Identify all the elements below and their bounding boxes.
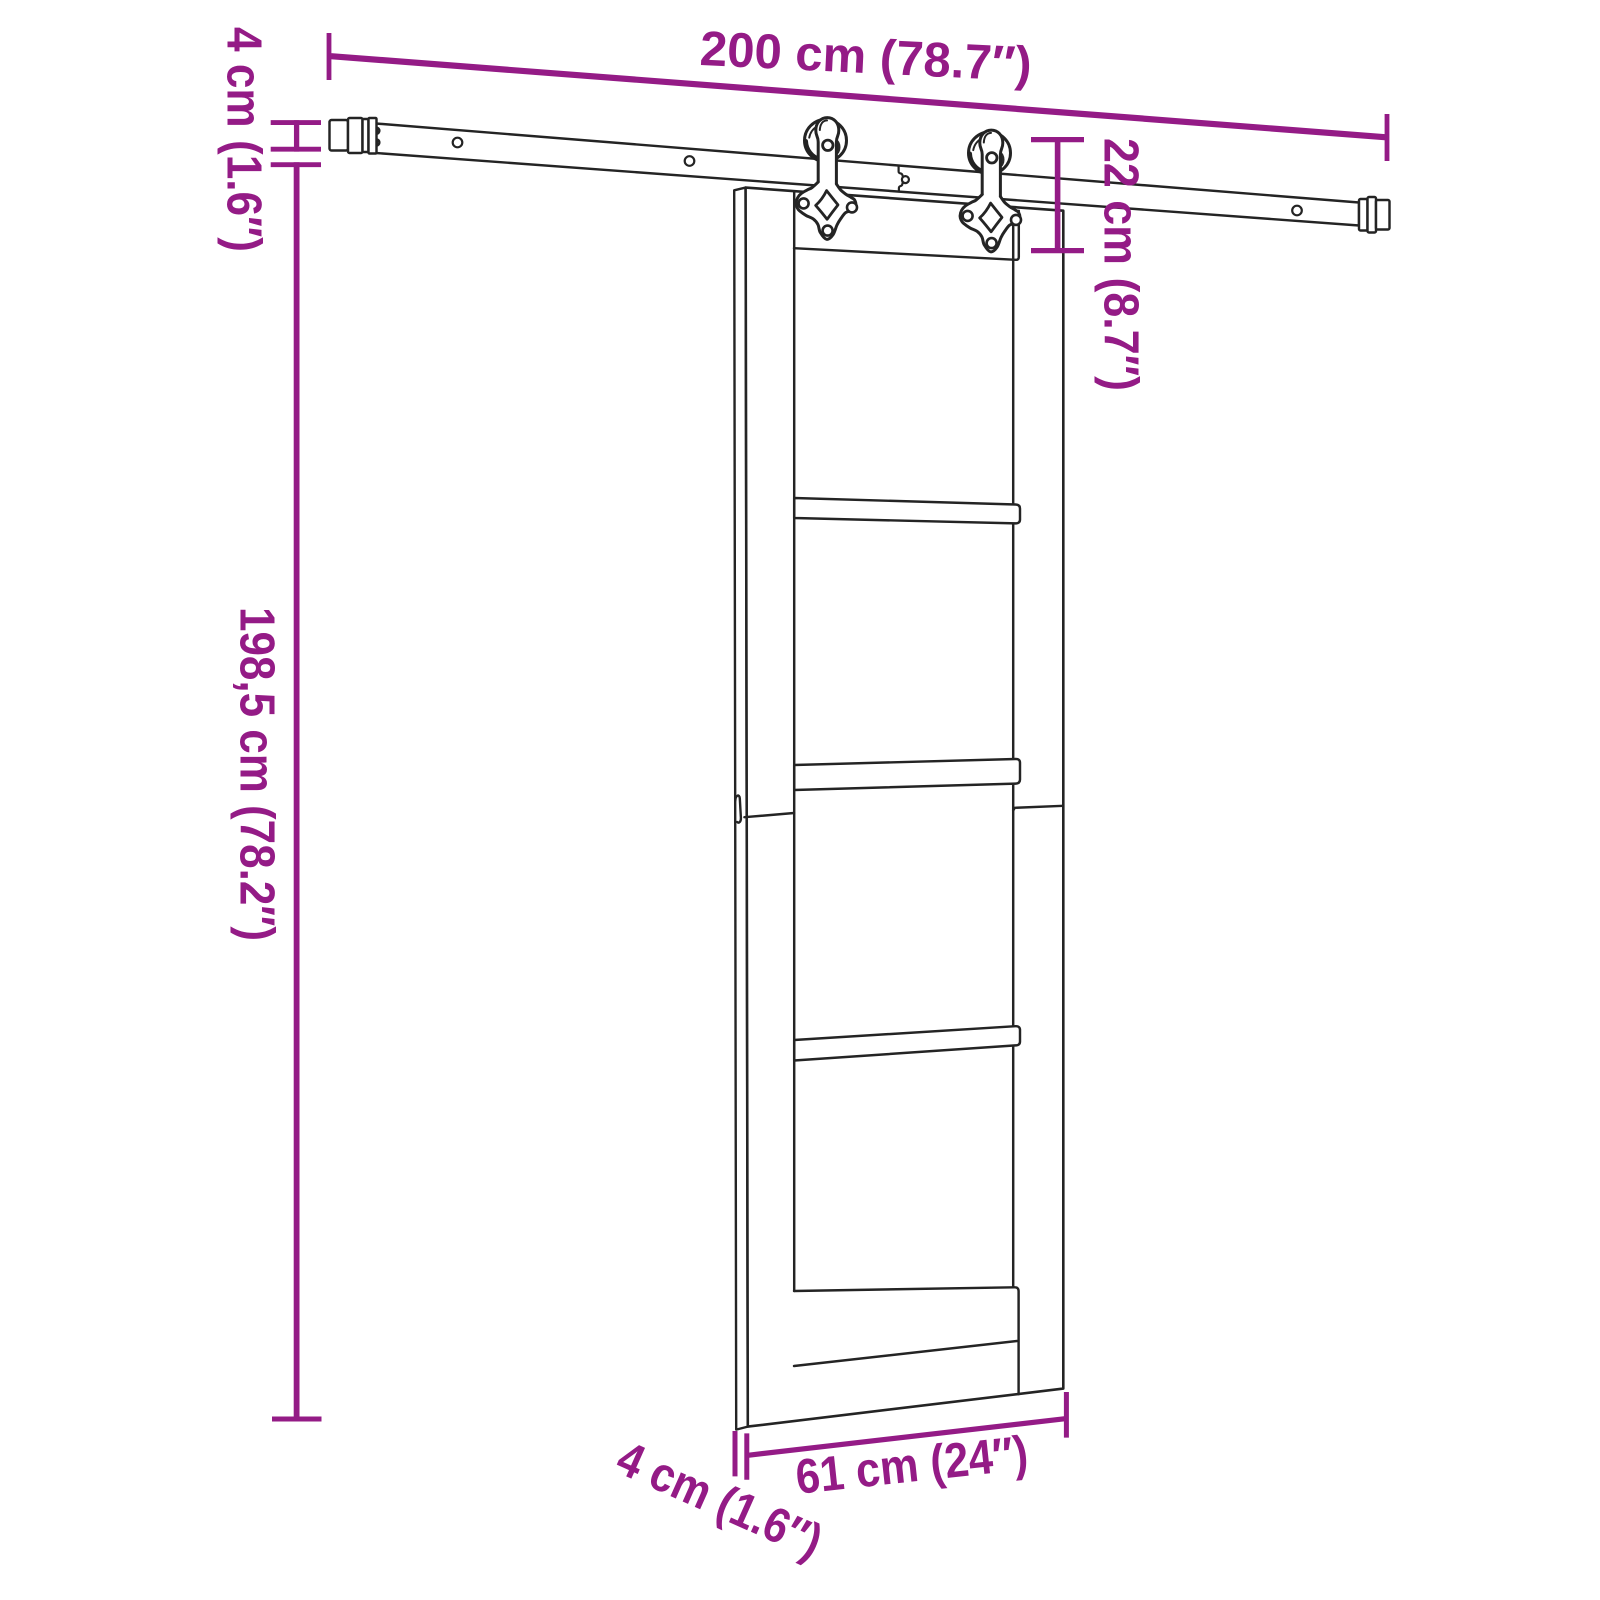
svg-text:22 cm (8.7″): 22 cm (8.7″) [1094,138,1148,391]
svg-text:198,5 cm (78.2″): 198,5 cm (78.2″) [230,607,284,941]
svg-text:61 cm (24″): 61 cm (24″) [793,1426,1030,1504]
svg-text:4 cm (1.6″): 4 cm (1.6″) [217,27,271,252]
svg-text:200 cm (78.7″): 200 cm (78.7″) [699,22,1033,92]
